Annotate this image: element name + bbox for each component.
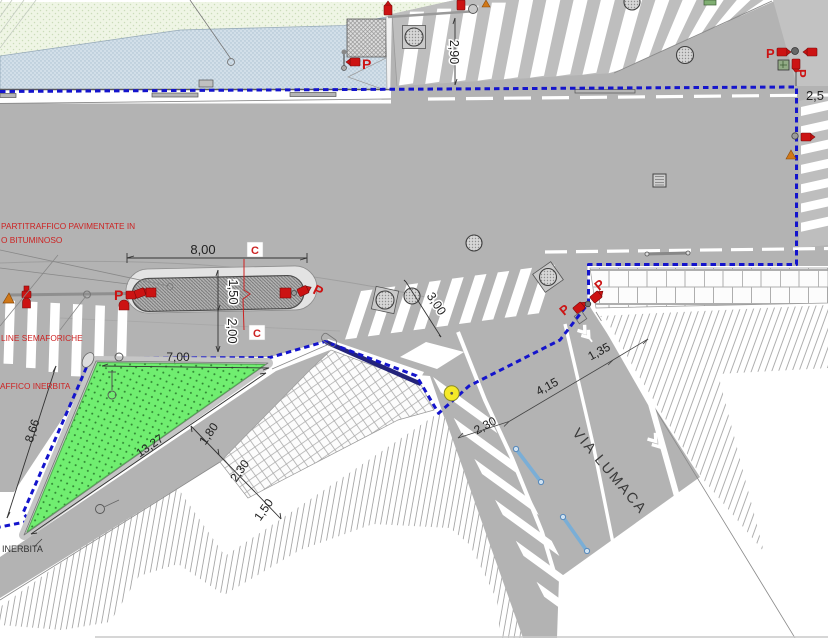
- svg-text:C: C: [253, 328, 261, 340]
- svg-text:2,5: 2,5: [806, 88, 824, 103]
- svg-text:PARTITRAFFICO PAVIMENTATE IN: PARTITRAFFICO PAVIMENTATE IN: [1, 221, 135, 231]
- svg-text:2,00: 2,00: [225, 318, 240, 343]
- svg-text:8,00: 8,00: [190, 242, 215, 257]
- svg-text:1,50: 1,50: [226, 279, 241, 304]
- svg-text:C: C: [251, 245, 259, 257]
- svg-text:LINE SEMAFORICHE: LINE SEMAFORICHE: [1, 333, 83, 343]
- svg-text:P: P: [766, 46, 775, 61]
- svg-text:INERBITA: INERBITA: [2, 544, 43, 554]
- svg-text:P: P: [362, 56, 371, 72]
- svg-text:AFFICO INERBITA: AFFICO INERBITA: [0, 381, 71, 391]
- svg-text:O BITUMINOSO: O BITUMINOSO: [1, 235, 63, 245]
- svg-text:2,90: 2,90: [447, 40, 461, 64]
- svg-text:7,00: 7,00: [166, 350, 190, 364]
